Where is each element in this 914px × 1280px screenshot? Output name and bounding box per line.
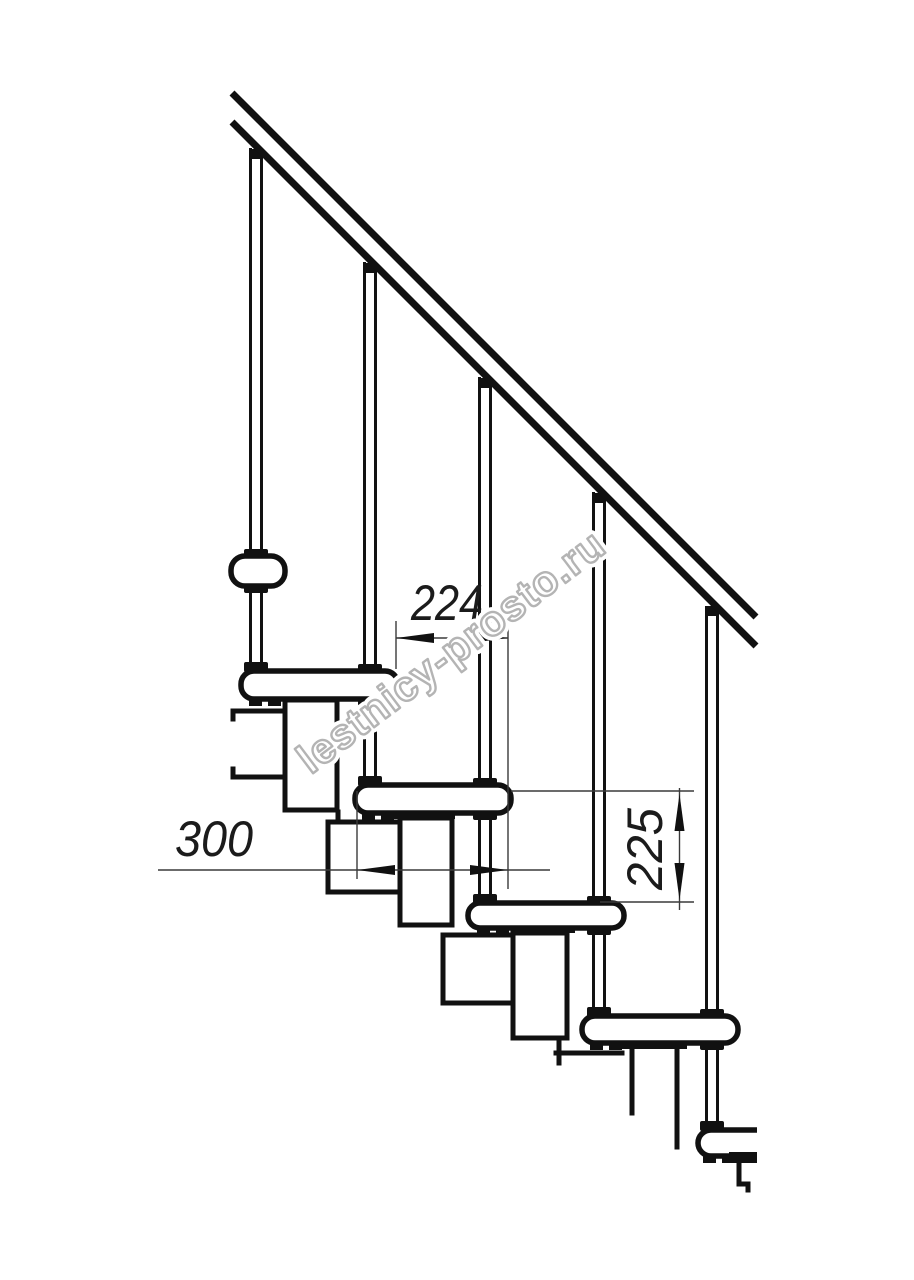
module-hook [739,1161,748,1190]
handrail [232,93,756,646]
baluster-foot [587,1007,611,1017]
bolt-tab [496,926,509,934]
staircase-technical-drawing: 224 300 225 lestnicy-prosto.ru lestnicy-… [0,0,914,1280]
tread-4 [468,903,624,928]
module-strip-2 [400,818,452,925]
bolt-tab [249,698,262,706]
baluster-5 [707,607,718,1131]
baluster-1 [251,148,262,672]
bolt-tab [477,926,490,934]
tread-5 [582,1016,738,1043]
dimension-label-300: 300 [175,811,253,867]
arrow-down-icon [675,863,685,900]
baluster-clamp [244,549,268,557]
baluster-clamp [244,585,268,593]
flange-bar [620,1042,687,1049]
fittings [244,149,757,1163]
watermark-label: lestnicy-prosto.ru [288,520,614,782]
flange-bar [729,1152,757,1163]
baluster-clamp [587,927,611,935]
baluster-clamp [473,778,497,786]
watermark: lestnicy-prosto.ru lestnicy-prosto.ru [288,520,614,782]
tread-3 [355,785,511,813]
baluster-clamp [587,896,611,904]
tread-1 [231,556,285,586]
bolt-tab [362,812,375,820]
module-box-3 [443,935,518,1003]
baluster-clamp [358,664,382,672]
baluster-clamp [473,812,497,820]
module-cut-lines [632,1048,677,1147]
baluster-clamp [700,1042,724,1050]
cut-section-lines [233,711,285,777]
handrail-bottom-line [232,122,756,646]
bolt-tab [703,1155,716,1163]
baluster-foot [244,662,268,672]
module-strip-3 [513,933,567,1038]
arrow-up-icon [675,794,685,831]
dimension-label-225: 225 [617,808,673,891]
flange-bar [515,926,575,933]
bolt-tab [268,698,281,706]
baluster-foot [700,1121,724,1131]
bolt-tab [590,1042,603,1050]
module-box-2 [328,822,405,892]
drawing-canvas: 224 300 225 lestnicy-prosto.ru lestnicy-… [0,0,914,1280]
baluster-clamp [700,1009,724,1017]
flange-bar [390,812,455,819]
baluster-foot [358,776,382,786]
baluster-foot [473,894,497,904]
handrail-top-line [232,93,756,617]
